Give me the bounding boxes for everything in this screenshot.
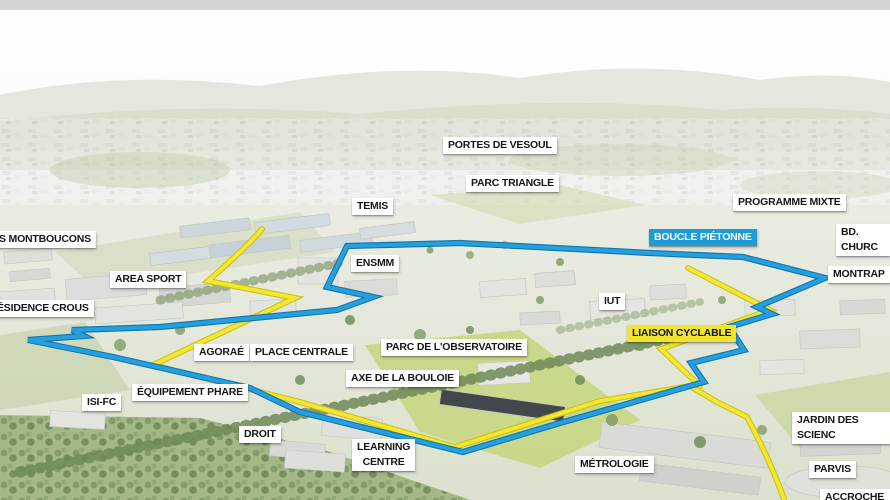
label-droit: DROIT [239,426,281,443]
label-jardin-des-sciences: JARDIN DES SCIENC [792,412,890,444]
label-isi-fc: ISI-FC [82,394,121,411]
label-parvis: PARVIS [809,461,856,478]
map-labels: PORTES DE VESOUL PARC TRIANGLE TEMIS PRO… [0,0,890,500]
label-place-centrale: PLACE CENTRALE [250,344,353,361]
label-montrapon: MONTRAP [828,266,890,283]
label-learning-centre: LEARNING CENTRE [352,439,415,471]
label-boucle-pietonne: BOUCLE PIÉTONNE [649,229,757,246]
label-les-montboucons: S MONTBOUCONS [0,231,96,248]
label-portes-de-vesoul: PORTES DE VESOUL [443,137,557,154]
label-area-sport: AREA SPORT [110,271,186,288]
label-agorae: AGORAÉ [194,344,249,361]
label-parc-de-l-observatoire: PARC DE L'OBSERVATOIRE [381,339,527,356]
label-axe-de-la-bouloie: AXE DE LA BOULOIE [346,370,459,387]
label-parc-triangle: PARC TRIANGLE [466,175,559,192]
label-programme-mixte: PROGRAMME MIXTE [733,194,846,211]
label-metrologie: MÉTROLOGIE [575,456,654,473]
label-bd-churchill: BD. CHURC [836,224,890,256]
label-liaison-cyclable: LIAISON CYCLABLE [627,325,736,342]
label-temis: TEMIS [352,198,393,215]
label-residence-crous: ÉSIDENCE CROUS [0,300,94,317]
label-accroche: ACCROCHE S [820,489,890,500]
campus-map: PORTES DE VESOUL PARC TRIANGLE TEMIS PRO… [0,0,890,500]
label-iut: IUT [599,293,625,310]
label-equipement-phare: ÉQUIPEMENT PHARE [132,384,248,401]
label-ensmm: ENSMM [351,255,399,272]
